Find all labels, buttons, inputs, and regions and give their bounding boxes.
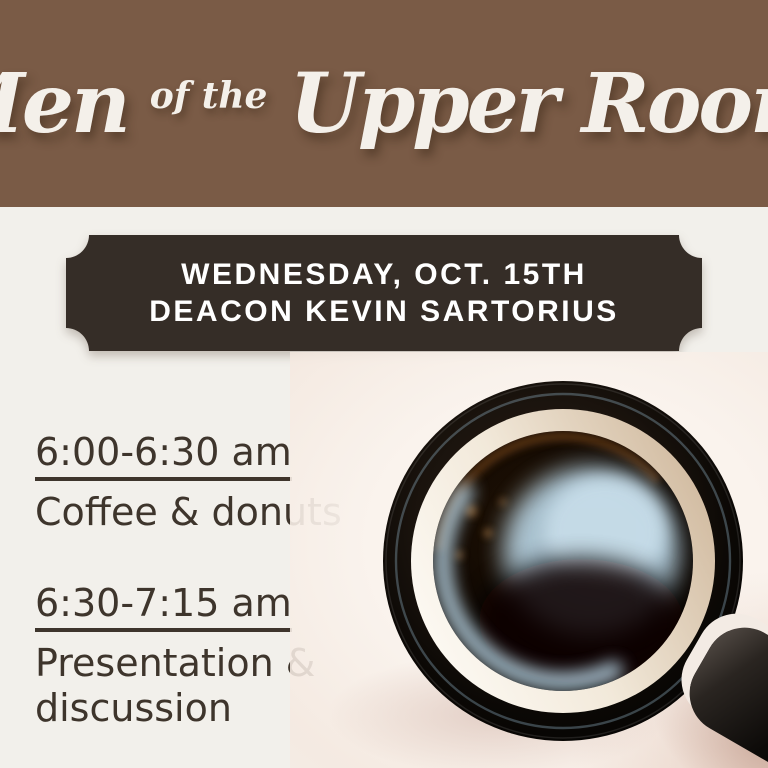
event-banner-plaque: WEDNESDAY, OCT. 15TH DEACON KEVIN SARTOR… [66, 235, 702, 351]
schedule-time: 6:00-6:30 am [35, 430, 292, 481]
flyer-page: Men of the Upper Room WEDNESDAY, OCT. 15… [0, 0, 768, 768]
header-band: Men of the Upper Room [0, 0, 768, 207]
title-word-of-the: of the [150, 75, 268, 117]
banner-line-speaker: DEACON KEVIN SARTORIUS [149, 293, 619, 330]
event-banner-text: WEDNESDAY, OCT. 15TH DEACON KEVIN SARTOR… [66, 235, 702, 351]
banner-line-date: WEDNESDAY, OCT. 15TH [181, 256, 587, 293]
schedule-time: 6:30-7:15 am [35, 581, 292, 632]
title-word-men: Men [0, 56, 128, 152]
title-word-upper-room: Upper Room [289, 56, 768, 152]
